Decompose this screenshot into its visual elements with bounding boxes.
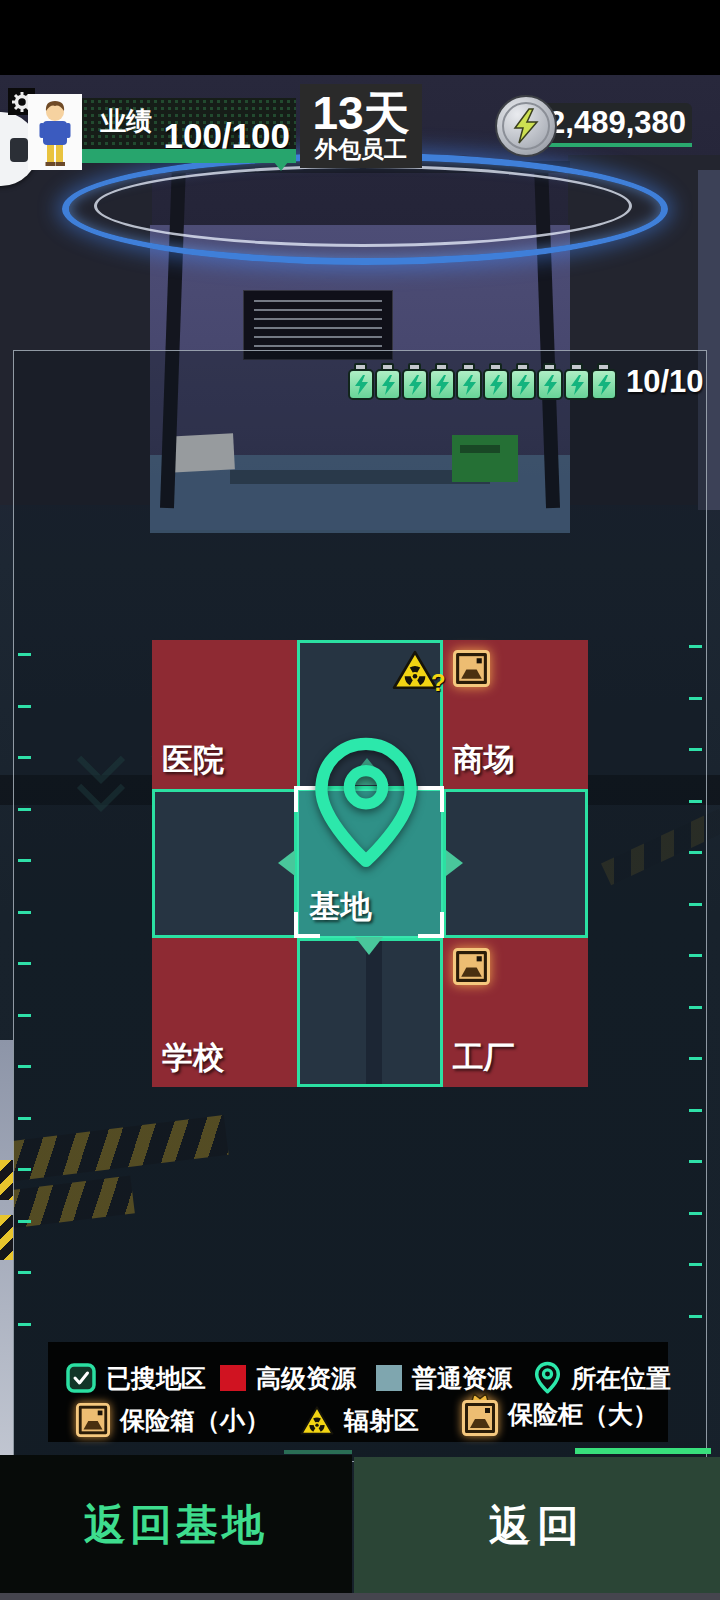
performance-label: 业绩 <box>100 104 152 139</box>
region-label: 商场 <box>453 739 515 781</box>
legend-item-location: 所在位置 <box>534 1358 671 1398</box>
battery-icon <box>510 363 536 401</box>
advanced-resource-swatch <box>220 1365 246 1391</box>
radiation-icon <box>300 1405 334 1436</box>
map-cell-r1c0[interactable] <box>152 789 297 938</box>
region-label: 学校 <box>162 1037 224 1079</box>
battery-icon <box>564 363 590 401</box>
region-label: 工厂 <box>453 1037 515 1079</box>
map-cell-r2c1[interactable] <box>297 938 442 1087</box>
move-left-arrow[interactable] <box>278 850 295 876</box>
edge-tick <box>689 1315 702 1318</box>
edge-tick <box>18 1065 31 1068</box>
edge-tick <box>689 1160 702 1163</box>
searched-checkbox-icon <box>66 1363 96 1393</box>
location-pin-icon <box>534 1361 561 1395</box>
edge-tick <box>18 962 31 965</box>
safe-small-icon <box>76 1403 110 1437</box>
battery-icon <box>429 363 455 401</box>
edge-tick <box>689 903 702 906</box>
legend-label: 保险箱（小） <box>120 1404 270 1437</box>
edge-tick <box>689 1109 702 1112</box>
avatar-character <box>28 94 82 170</box>
map-cell-r2c2[interactable]: 工厂 <box>443 938 588 1087</box>
safe-small-icon <box>453 948 490 985</box>
normal-resource-swatch <box>376 1365 402 1391</box>
return-base-label: 返回基地 <box>84 1497 268 1553</box>
return-label: 返回 <box>489 1498 585 1554</box>
floating-widget-notch <box>10 138 28 162</box>
edge-tick <box>689 1006 702 1009</box>
day-count: 13天 <box>312 90 409 136</box>
energy-bar: 10/10 <box>348 363 704 401</box>
currency-underline <box>540 143 692 147</box>
legend-label: 已搜地区 <box>106 1362 206 1395</box>
battery-icon <box>402 363 428 401</box>
return-base-button[interactable]: 返回基地 <box>0 1455 352 1595</box>
edge-tick <box>18 1117 31 1120</box>
legend-label: 普通资源 <box>412 1362 512 1395</box>
energy-batteries <box>348 363 618 401</box>
return-button[interactable]: 返回 <box>354 1457 720 1595</box>
safe-small-icon <box>453 650 490 687</box>
day-subtitle: 外包员工 <box>315 136 407 162</box>
edge-tick <box>18 1323 31 1326</box>
day-panel: 13天 外包员工 <box>300 84 422 168</box>
edge-tick <box>689 697 702 700</box>
radiation-question-mark: ? <box>431 669 446 697</box>
battery-icon <box>456 363 482 401</box>
battery-icon <box>375 363 401 401</box>
map-cell-r0c0[interactable]: 医院 <box>152 640 297 789</box>
legend-label: 高级资源 <box>256 1362 356 1395</box>
legend-label: 所在位置 <box>571 1362 671 1395</box>
legend-item-advanced: 高级资源 <box>220 1358 356 1398</box>
edge-tick <box>689 1212 702 1215</box>
header-bar: 业绩 100/100 13天 外包员工 2,489,380 <box>0 0 720 190</box>
legend-item-radiation: 辐射区 <box>300 1400 419 1440</box>
edge-tick <box>18 1014 31 1017</box>
gesture-bar <box>0 1593 720 1600</box>
edge-tick <box>18 808 31 811</box>
edge-tick <box>689 851 702 854</box>
safe-large-icon <box>462 1392 498 1436</box>
current-location-pin <box>310 736 422 872</box>
battery-icon <box>537 363 563 401</box>
edge-tick <box>18 859 31 862</box>
map-grid: 工厂学校基地商场?医院 <box>152 640 589 1087</box>
button-accent-line <box>284 1450 352 1454</box>
edge-hazard <box>0 1215 13 1260</box>
avatar[interactable] <box>28 94 82 170</box>
edge-tick <box>689 1057 702 1060</box>
move-down-arrow[interactable] <box>355 937 383 955</box>
currency-value: 2,489,380 <box>548 105 686 141</box>
edge-tick <box>18 1271 31 1274</box>
coin-ring <box>502 102 550 150</box>
energy-count: 10/10 <box>626 363 704 401</box>
edge-tick <box>18 653 31 656</box>
edge-tick <box>689 954 702 957</box>
legend-label: 辐射区 <box>344 1404 419 1437</box>
performance-progress-bar <box>82 149 296 163</box>
currency-panel: 2,489,380 <box>540 103 692 143</box>
edge-tick <box>689 748 702 751</box>
selection-bracket <box>294 912 320 938</box>
battery-icon <box>483 363 509 401</box>
map-cell-r2c0[interactable]: 学校 <box>152 938 297 1087</box>
edge-tick <box>18 1168 31 1171</box>
button-accent-line <box>575 1448 711 1454</box>
move-right-arrow[interactable] <box>446 850 463 876</box>
notice-text-lines <box>254 300 382 350</box>
region-label: 医院 <box>162 739 224 781</box>
legend-item-searched: 已搜地区 <box>66 1358 206 1398</box>
game-screen: 10/10 工厂学校基地商场?医院 已搜地区 高级资源 普通资源 <box>0 0 720 1600</box>
edge-hazard <box>0 1160 13 1200</box>
battery-icon <box>348 363 374 401</box>
edge-tick <box>689 800 702 803</box>
edge-tick <box>18 756 31 759</box>
radiation-icon: ? <box>392 649 438 691</box>
edge-tick <box>18 911 31 914</box>
map-cell-r1c2[interactable] <box>443 789 588 938</box>
road-stripe <box>366 941 382 1084</box>
edge-tick <box>18 1220 31 1223</box>
legend-label: 保险柜（大） <box>508 1398 658 1431</box>
performance-caret <box>274 162 288 171</box>
edge-tick <box>18 705 31 708</box>
legend-item-safe-small: 保险箱（小） <box>76 1400 270 1440</box>
edge-tick <box>689 1263 702 1266</box>
edge-tick <box>689 645 702 648</box>
coin-icon <box>495 95 557 157</box>
battery-icon <box>591 363 617 401</box>
map-legend: 已搜地区 高级资源 普通资源 所在位置 保险箱（小） 辐射区 保险柜（大） <box>48 1342 668 1442</box>
selection-bracket <box>418 912 444 938</box>
map-cell-r0c2[interactable]: 商场 <box>443 640 588 789</box>
legend-item-safe-large: 保险柜（大） <box>462 1394 658 1434</box>
performance-panel: 业绩 100/100 <box>82 98 296 163</box>
